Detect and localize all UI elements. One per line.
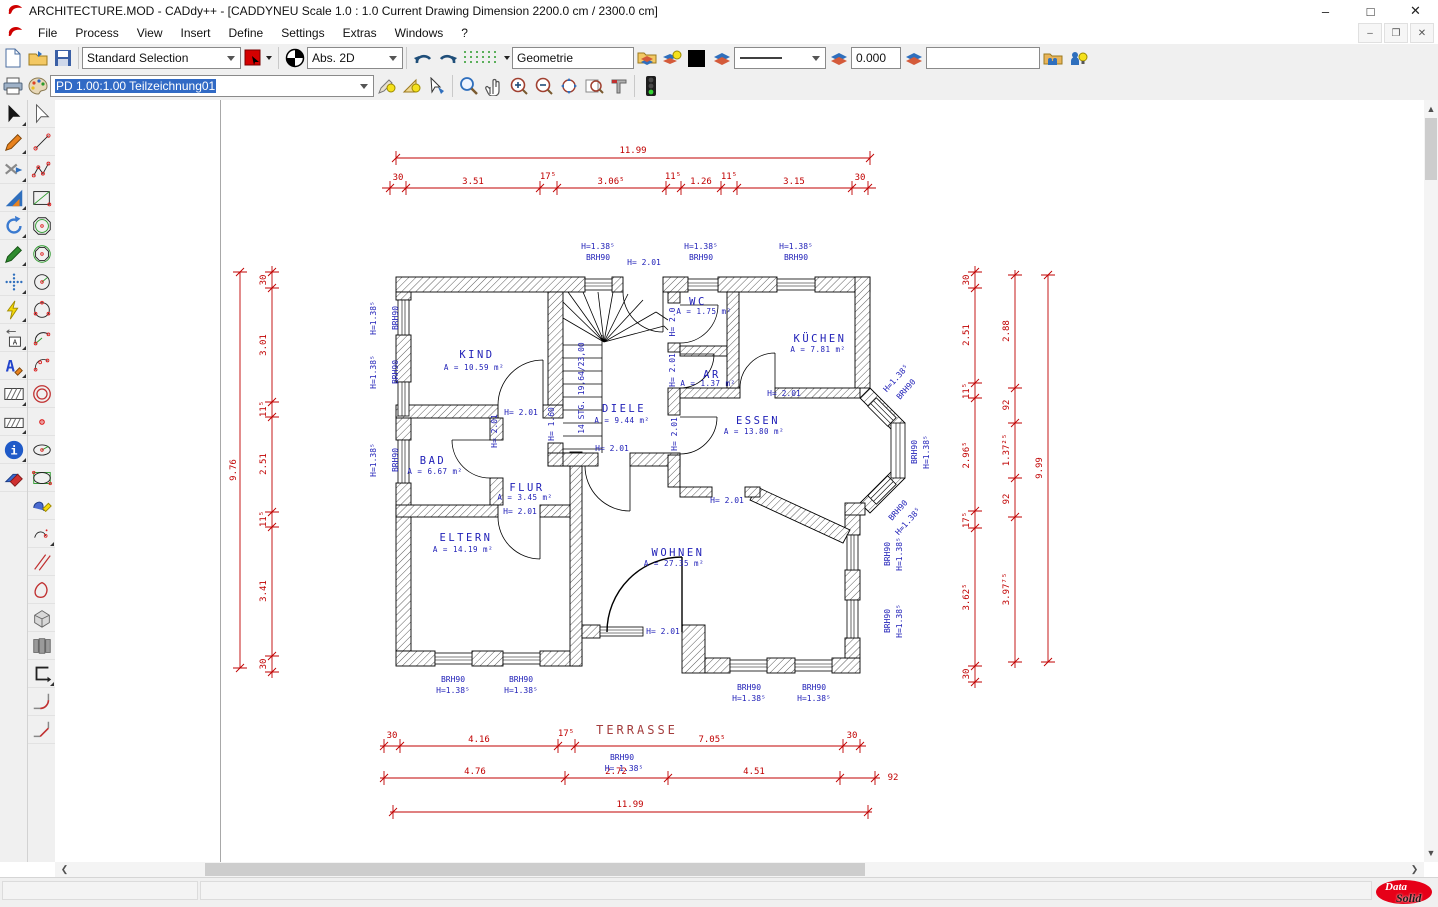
svg-text:H= 1.38⁵: H= 1.38⁵ xyxy=(605,764,644,773)
svg-text:11⁵: 11⁵ xyxy=(962,383,972,399)
svg-text:H= 2.01: H= 2.01 xyxy=(767,389,801,398)
svg-text:11⁵: 11⁵ xyxy=(259,511,269,527)
dimension-tool[interactable]: A xyxy=(0,324,27,352)
chamfer-tool[interactable] xyxy=(28,716,55,744)
svg-text:H= 2.01: H= 2.01 xyxy=(595,444,629,453)
status-bar: Data Solid xyxy=(0,877,1438,907)
donut-tool[interactable] xyxy=(28,380,55,408)
svg-text:KÜCHEN: KÜCHEN xyxy=(794,332,847,345)
angle-input[interactable]: 0.000 xyxy=(851,47,901,69)
svg-text:BRH90: BRH90 xyxy=(391,448,400,472)
grid-settings-button[interactable] xyxy=(460,46,512,70)
menu-extras[interactable]: Extras xyxy=(334,24,386,42)
svg-text:3.41: 3.41 xyxy=(259,580,269,602)
fillet-tool[interactable] xyxy=(28,688,55,716)
svg-text:4.51: 4.51 xyxy=(743,767,765,777)
ruler-light-button[interactable] xyxy=(399,74,424,98)
svg-text:H=1.38⁵: H=1.38⁵ xyxy=(581,242,615,251)
svg-text:A = 3.45 m²: A = 3.45 m² xyxy=(497,493,552,502)
group-browse-button[interactable] xyxy=(1040,46,1065,70)
group-visibility-button[interactable] xyxy=(1065,46,1090,70)
freehand-tool[interactable] xyxy=(28,492,55,520)
menu-windows[interactable]: Windows xyxy=(386,24,453,42)
annotate-tool[interactable] xyxy=(0,240,27,268)
pen-light-button[interactable] xyxy=(374,74,399,98)
svg-text:ESSEN: ESSEN xyxy=(736,415,780,427)
menu-settings[interactable]: Settings xyxy=(272,24,333,42)
svg-text:30: 30 xyxy=(855,173,866,183)
svg-text:H=1.38⁵: H=1.38⁵ xyxy=(369,355,378,389)
svg-text:A = 6.67 m²: A = 6.67 m² xyxy=(407,467,462,476)
svg-text:7.05⁵: 7.05⁵ xyxy=(698,735,725,745)
info-tool[interactable]: i xyxy=(0,436,27,464)
text-tool[interactable]: A xyxy=(0,352,27,380)
title-bar: ARCHITECTURE.MOD - CADdy++ - [CADDYNEU S… xyxy=(0,0,1438,23)
svg-text:H=1.38⁵: H=1.38⁵ xyxy=(732,694,766,703)
mdi-minimize-button[interactable]: – xyxy=(1358,23,1382,43)
svg-text:11⁵: 11⁵ xyxy=(665,172,681,182)
point-tool[interactable] xyxy=(28,408,55,436)
svg-text:i: i xyxy=(10,443,17,457)
mdi-close-button[interactable]: ✕ xyxy=(1410,23,1434,43)
svg-text:9.99: 9.99 xyxy=(1035,457,1045,479)
svg-text:BRH90: BRH90 xyxy=(441,675,465,684)
maximize-button[interactable]: □ xyxy=(1348,0,1393,22)
extra-input[interactable] xyxy=(926,47,1040,69)
svg-text:30: 30 xyxy=(962,669,972,680)
svg-text:4.76: 4.76 xyxy=(464,767,486,777)
scroll-down-icon[interactable]: ▼ xyxy=(1424,846,1438,860)
redraw-button[interactable] xyxy=(606,74,631,98)
selection-rect-button[interactable] xyxy=(241,46,275,70)
layer-folder-button[interactable] xyxy=(634,46,659,70)
document-system-icon[interactable] xyxy=(8,26,23,41)
datasolid-logo: Data Solid xyxy=(1376,879,1436,906)
svg-text:92: 92 xyxy=(888,773,899,783)
svg-text:11⁵: 11⁵ xyxy=(721,172,737,182)
svg-text:H=1.38⁵: H=1.38⁵ xyxy=(369,443,378,477)
svg-text:17⁵: 17⁵ xyxy=(962,512,972,528)
svg-text:30: 30 xyxy=(259,275,269,286)
trim-tool[interactable] xyxy=(0,156,27,184)
svg-text:A = 7.81 m²: A = 7.81 m² xyxy=(790,345,845,354)
svg-text:BRH90: BRH90 xyxy=(610,753,634,762)
scroll-left-icon[interactable]: ❮ xyxy=(57,862,72,877)
svg-text:A: A xyxy=(5,357,15,375)
print-button[interactable] xyxy=(0,74,25,98)
svg-text:11.99: 11.99 xyxy=(616,800,643,810)
menu-process[interactable]: Process xyxy=(66,24,127,42)
svg-text:H= 2.01: H= 2.01 xyxy=(710,496,744,505)
svg-text:3.62⁵: 3.62⁵ xyxy=(962,583,972,610)
eraser-tool[interactable] xyxy=(0,464,27,492)
app-logo-icon xyxy=(8,4,23,19)
svg-text:H= 2.01: H= 2.01 xyxy=(627,258,661,267)
coordinate-mode-value: Abs. 2D xyxy=(312,51,355,65)
svg-text:30: 30 xyxy=(962,275,972,286)
svg-text:3.97⁷⁵: 3.97⁷⁵ xyxy=(1002,573,1012,606)
svg-text:A = 13.80 m²: A = 13.80 m² xyxy=(724,427,784,436)
spline-contour-tool[interactable] xyxy=(28,576,55,604)
curve-tool[interactable] xyxy=(28,520,55,548)
menu-view[interactable]: View xyxy=(128,24,172,42)
svg-text:BRH90: BRH90 xyxy=(784,253,808,262)
svg-text:11⁵: 11⁵ xyxy=(259,401,269,417)
svg-text:A: A xyxy=(12,337,17,346)
drawing-sheet-value: PD 1.00:1.00 Teilzeichnung01 xyxy=(55,79,216,93)
svg-text:30: 30 xyxy=(847,731,858,741)
selection-mode-value: Standard Selection xyxy=(87,51,188,65)
zoom-extents-button[interactable] xyxy=(556,74,581,98)
svg-text:H=1.38⁵: H=1.38⁵ xyxy=(504,686,538,695)
drawing-sheet-combo[interactable]: PD 1.00:1.00 Teilzeichnung01 xyxy=(50,75,374,97)
svg-text:3.15: 3.15 xyxy=(783,177,805,187)
redo-button[interactable] xyxy=(435,46,460,70)
close-button[interactable]: ✕ xyxy=(1393,0,1438,22)
wall-tool[interactable] xyxy=(28,632,55,660)
undo-button[interactable] xyxy=(410,46,435,70)
scroll-right-icon[interactable]: ❯ xyxy=(1407,862,1422,877)
svg-text:KIND: KIND xyxy=(459,349,494,361)
menu-define[interactable]: Define xyxy=(220,24,273,42)
svg-text:92: 92 xyxy=(1002,494,1012,505)
menu-file[interactable]: File xyxy=(29,24,66,42)
arc-tool[interactable] xyxy=(28,324,55,352)
svg-text:BRH90: BRH90 xyxy=(883,542,892,566)
svg-text:BRH90: BRH90 xyxy=(689,253,713,262)
dimension-lines xyxy=(233,151,1055,819)
datasolid-logo-bottom: Solid xyxy=(1396,891,1421,906)
line-style-combo[interactable] xyxy=(734,47,826,69)
svg-text:BRH90: BRH90 xyxy=(910,440,919,464)
svg-text:BRH90: BRH90 xyxy=(802,683,826,692)
toolbar-standard: Standard Selection Abs. 2D Geometrie 0.0… xyxy=(0,44,1438,73)
svg-text:BRH90: BRH90 xyxy=(586,253,610,262)
rectangle-tool[interactable] xyxy=(28,184,55,212)
circle-3point-tool[interactable] xyxy=(28,296,55,324)
svg-text:H=1.38⁵: H=1.38⁵ xyxy=(779,242,813,251)
ellipse-tool[interactable] xyxy=(28,436,55,464)
svg-text:H=1.38⁵: H=1.38⁵ xyxy=(797,694,831,703)
ellipse-rect-tool[interactable] xyxy=(28,464,55,492)
svg-text:BRH90: BRH90 xyxy=(737,683,761,692)
layer-visibility-button[interactable] xyxy=(659,46,684,70)
svg-text:11.99: 11.99 xyxy=(619,146,646,156)
doors xyxy=(452,292,775,632)
horizontal-scroll-thumb[interactable] xyxy=(205,863,865,876)
svg-text:ELTERN: ELTERN xyxy=(440,532,493,544)
hatch-edit-tool[interactable] xyxy=(0,408,27,436)
angle-value: 0.000 xyxy=(856,51,886,65)
palette-button[interactable] xyxy=(25,74,50,98)
parallel-line-tool[interactable] xyxy=(28,548,55,576)
point-snap-tool[interactable] xyxy=(0,268,27,296)
pen-layer-button[interactable] xyxy=(709,46,734,70)
svg-text:2.51: 2.51 xyxy=(962,324,972,346)
toolbar-view: PD 1.00:1.00 Teilzeichnung01 xyxy=(0,72,1438,101)
svg-text:H= 2.01: H= 2.01 xyxy=(668,353,677,387)
svg-text:H= 2.01: H= 2.01 xyxy=(646,627,680,636)
polyline-tool[interactable] xyxy=(28,156,55,184)
svg-text:9.76: 9.76 xyxy=(229,459,239,481)
layer-name-input[interactable]: Geometrie xyxy=(512,47,634,69)
svg-text:A = 1.75 m²: A = 1.75 m² xyxy=(676,307,731,316)
svg-text:H=1.38⁵: H=1.38⁵ xyxy=(684,242,718,251)
svg-text:H= 2.01: H= 2.01 xyxy=(670,417,679,451)
menu-bar: File Process View Insert Define Settings… xyxy=(0,22,1438,44)
horizontal-scrollbar[interactable]: ❮ ❯ xyxy=(55,862,1424,877)
angle-layer-button[interactable] xyxy=(901,46,926,70)
svg-text:H=1.38⁵: H=1.38⁵ xyxy=(895,604,904,638)
zoom-in-button[interactable] xyxy=(506,74,531,98)
svg-text:A = 27.35 m²: A = 27.35 m² xyxy=(644,559,704,568)
svg-text:3.01: 3.01 xyxy=(259,334,269,356)
linetype-layer-button[interactable] xyxy=(826,46,851,70)
svg-text:30: 30 xyxy=(393,173,404,183)
svg-text:17⁵: 17⁵ xyxy=(558,729,574,739)
svg-text:BRH90: BRH90 xyxy=(883,609,892,633)
arc-3point-tool[interactable] xyxy=(28,352,55,380)
zoom-button[interactable] xyxy=(456,74,481,98)
menu-insert[interactable]: Insert xyxy=(172,24,220,42)
selection-mode-combo[interactable]: Standard Selection xyxy=(82,47,241,69)
box-3d-tool[interactable] xyxy=(28,604,55,632)
svg-text:H= 2.0: H= 2.0 xyxy=(668,307,677,336)
svg-text:BRH90: BRH90 xyxy=(509,675,533,684)
zoom-window-button[interactable] xyxy=(581,74,606,98)
layer-name-value: Geometrie xyxy=(517,51,573,65)
svg-text:2.96⁵: 2.96⁵ xyxy=(962,441,972,468)
svg-text:H=1.38⁵: H=1.38⁵ xyxy=(436,686,470,695)
room-labels: KINDA = 10.59 m² DIELEA = 9.44 m² WCA = … xyxy=(407,296,846,568)
contour-tool[interactable] xyxy=(28,660,55,688)
minimize-button[interactable]: – xyxy=(1303,0,1348,22)
line-tool[interactable] xyxy=(28,128,55,156)
svg-text:A = 14.19 m²: A = 14.19 m² xyxy=(433,545,493,554)
vertical-scrollbar[interactable]: ▲ ▼ xyxy=(1424,100,1438,862)
floor-plan: 11.99 30 3.51 17⁵ 3.06⁵ 11⁵ 1.26 11⁵ 3.1… xyxy=(55,100,1424,862)
new-file-button[interactable] xyxy=(0,46,25,70)
svg-text:BAD: BAD xyxy=(420,455,446,467)
svg-text:92: 92 xyxy=(1002,400,1012,411)
hatch-tool[interactable] xyxy=(0,380,27,408)
window-title: ARCHITECTURE.MOD - CADdy++ - [CADDYNEU S… xyxy=(29,4,658,18)
svg-text:A = 10.59 m²: A = 10.59 m² xyxy=(444,363,504,372)
tool-palette: A A i xyxy=(0,100,56,862)
svg-text:H= 2.01: H= 2.01 xyxy=(490,414,499,448)
svg-text:2.51: 2.51 xyxy=(259,453,269,475)
save-button[interactable] xyxy=(50,46,75,70)
svg-text:H= 2.01: H= 2.01 xyxy=(503,507,537,516)
open-file-button[interactable] xyxy=(25,46,50,70)
dimension-labels: 11.99 30 3.51 17⁵ 3.06⁵ 11⁵ 1.26 11⁵ 3.1… xyxy=(229,146,1045,810)
svg-text:A = 1.37 m²: A = 1.37 m² xyxy=(680,379,735,388)
draw-tool[interactable] xyxy=(0,128,27,156)
pen-color-swatch[interactable] xyxy=(684,46,709,70)
zoom-out-button[interactable] xyxy=(531,74,556,98)
svg-text:H= 2.01: H= 2.01 xyxy=(504,408,538,417)
svg-text:BRH90: BRH90 xyxy=(391,306,400,330)
terrasse-label: TERRASSE xyxy=(596,723,678,737)
svg-text:4.16: 4.16 xyxy=(468,735,490,745)
svg-text:2.88: 2.88 xyxy=(1002,320,1012,342)
coordinate-mode-combo[interactable]: Abs. 2D xyxy=(307,47,403,69)
svg-text:30: 30 xyxy=(387,731,398,741)
svg-text:1.26: 1.26 xyxy=(690,177,712,187)
svg-text:WOHNEN: WOHNEN xyxy=(652,547,705,559)
svg-text:A = 9.44 m²: A = 9.44 m² xyxy=(594,416,649,425)
modify-tool[interactable] xyxy=(0,184,27,212)
rotate-tool[interactable] xyxy=(0,212,27,240)
svg-text:BRH90: BRH90 xyxy=(391,360,400,384)
status-panel-main xyxy=(200,881,1372,900)
svg-text:3.06⁵: 3.06⁵ xyxy=(597,177,624,187)
select-tool[interactable] xyxy=(0,100,27,128)
svg-text:DIELE: DIELE xyxy=(602,403,646,415)
select-element-tool[interactable] xyxy=(28,100,55,128)
scroll-up-icon[interactable]: ▲ xyxy=(1424,102,1438,116)
menu-help[interactable]: ? xyxy=(452,24,477,42)
svg-text:1.37²⁵: 1.37²⁵ xyxy=(1002,434,1012,467)
drawing-canvas[interactable]: 11.99 30 3.51 17⁵ 3.06⁵ 11⁵ 1.26 11⁵ 3.1… xyxy=(55,100,1424,862)
svg-text:3.51: 3.51 xyxy=(462,177,484,187)
status-panel-left xyxy=(2,881,198,900)
svg-text:H=1.38⁵: H=1.38⁵ xyxy=(369,301,378,335)
stairs-label: 14 STG. 19,64/23,00 xyxy=(577,342,586,434)
svg-text:30: 30 xyxy=(259,659,269,670)
pan-hand-button[interactable] xyxy=(481,74,506,98)
svg-text:H=1.38⁵: H=1.38⁵ xyxy=(895,537,904,571)
polygon-tool[interactable] xyxy=(28,212,55,240)
select-paint-button[interactable] xyxy=(424,74,449,98)
status-light-button[interactable] xyxy=(638,74,663,98)
circle-radius-tool[interactable] xyxy=(28,268,55,296)
svg-text:H=1.38⁵: H=1.38⁵ xyxy=(922,435,931,469)
svg-text:17⁵: 17⁵ xyxy=(540,172,556,182)
quick-edit-tool[interactable] xyxy=(0,296,27,324)
origin-button[interactable] xyxy=(282,46,307,70)
svg-text:H= 1.60: H= 1.60 xyxy=(547,407,556,441)
vertical-scroll-thumb[interactable] xyxy=(1425,118,1437,180)
mdi-restore-button[interactable]: ❐ xyxy=(1384,23,1408,43)
inscribed-polygon-tool[interactable] xyxy=(28,240,55,268)
page-boundary xyxy=(220,100,221,862)
